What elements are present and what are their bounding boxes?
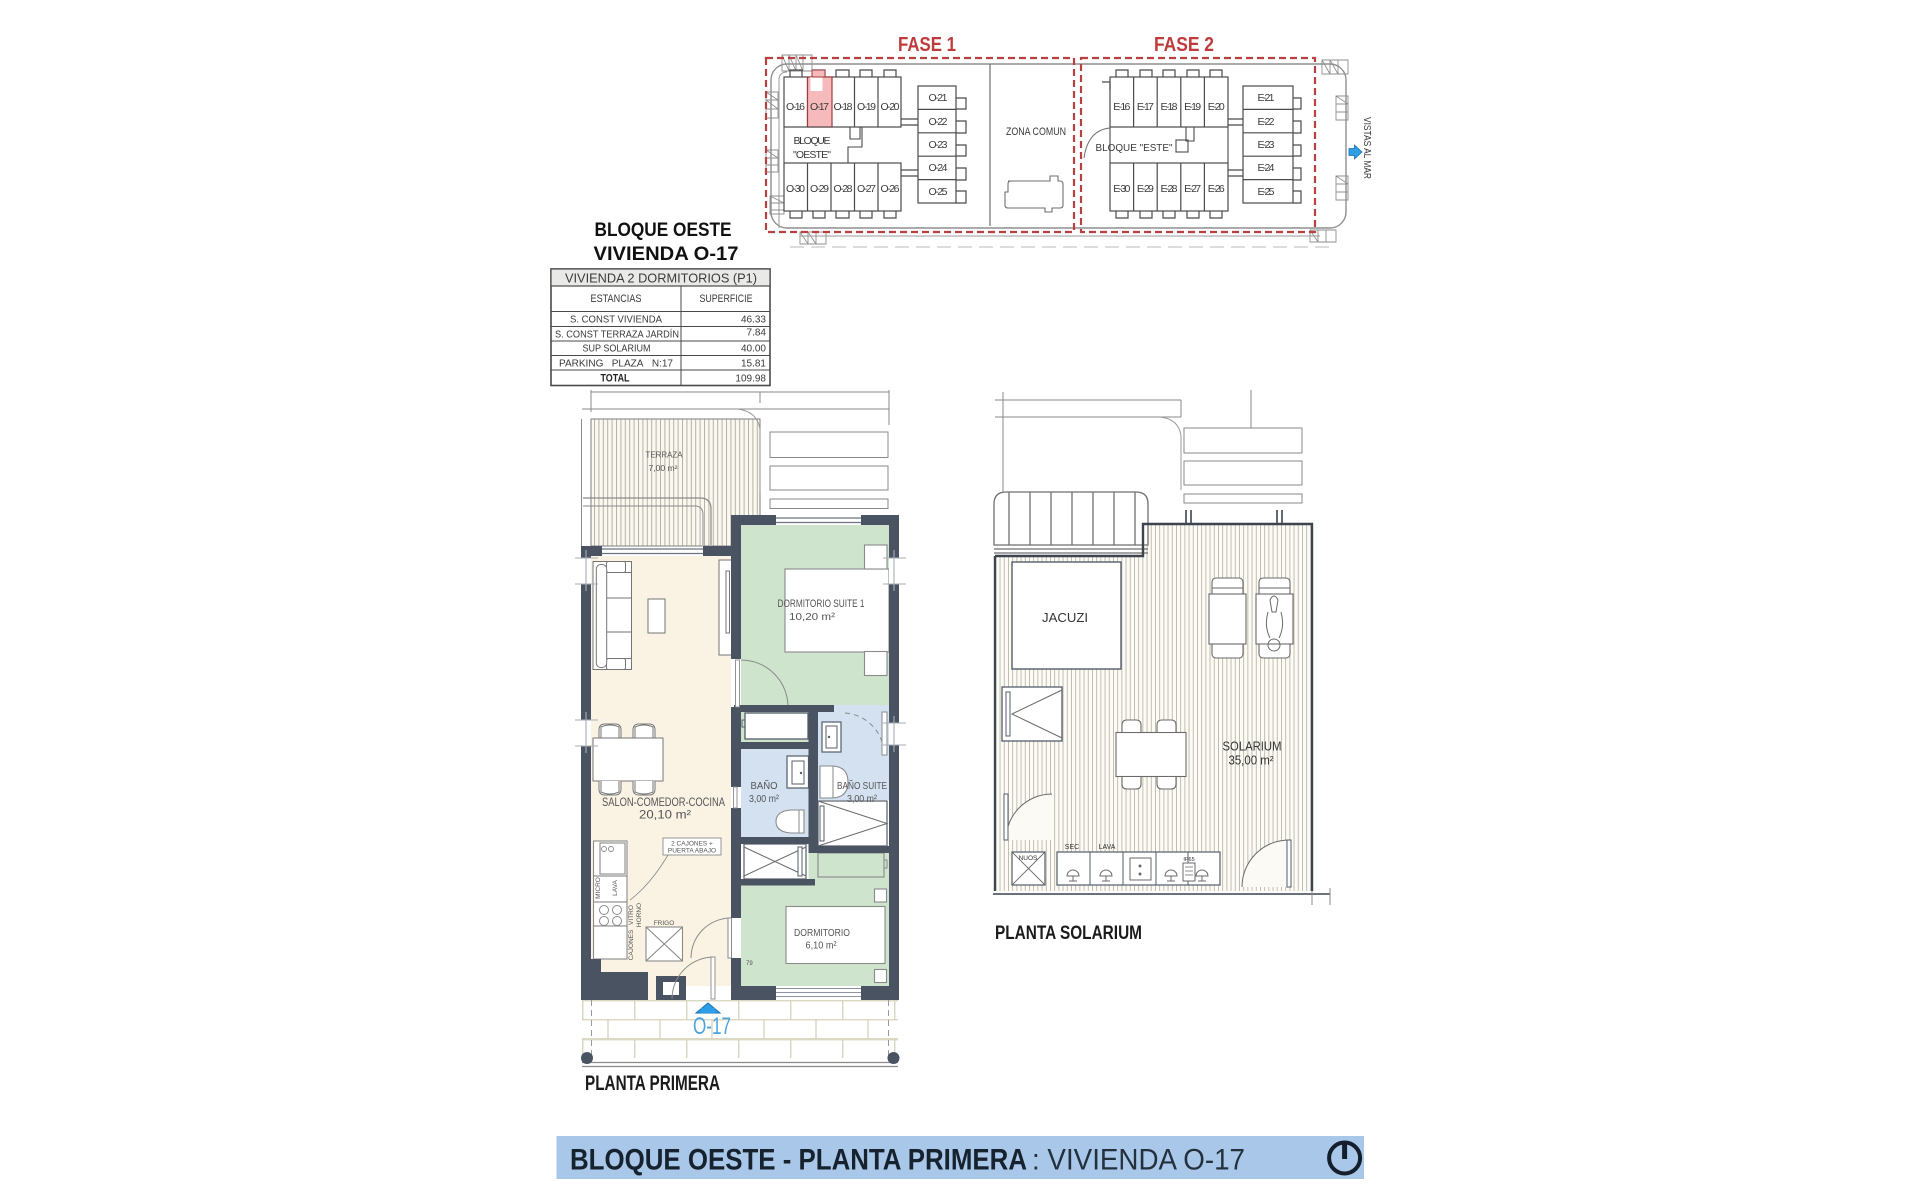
svg-text:HORNO: HORNO	[636, 903, 643, 927]
svg-text:BAÑO: BAÑO	[751, 779, 778, 792]
svg-text:E-17: E-17	[1137, 101, 1154, 113]
svg-text:ESTANCIAS: ESTANCIAS	[591, 293, 642, 305]
svg-text:3,00 m²: 3,00 m²	[847, 794, 878, 805]
svg-text:SEC: SEC	[1065, 844, 1079, 851]
svg-text:"OESTE": "OESTE"	[793, 149, 831, 161]
svg-text:O-19: O-19	[857, 101, 876, 113]
svg-text:6,10 m²: 6,10 m²	[806, 940, 837, 952]
svg-text:E-25: E-25	[1258, 186, 1275, 198]
svg-text:E-29: E-29	[1137, 183, 1154, 195]
svg-text:TOTAL: TOTAL	[601, 373, 630, 385]
svg-text:10,20 m²: 10,20 m²	[789, 611, 836, 623]
svg-text:E-18: E-18	[1161, 101, 1178, 113]
svg-text:E-16: E-16	[1113, 101, 1130, 113]
svg-text:7.84: 7.84	[747, 328, 767, 339]
svg-text:E-24: E-24	[1258, 162, 1275, 174]
svg-text:O-24: O-24	[929, 162, 948, 174]
svg-text:O-16: O-16	[786, 101, 805, 113]
svg-text:15.81: 15.81	[741, 359, 766, 370]
svg-text:DORMITORIO SUITE 1: DORMITORIO SUITE 1	[778, 598, 865, 610]
svg-text:79: 79	[746, 961, 753, 967]
svg-text:O-30: O-30	[786, 183, 805, 195]
svg-text:E-27: E-27	[1184, 183, 1201, 195]
svg-text:O-18: O-18	[834, 101, 853, 113]
svg-text:LAVA: LAVA	[612, 880, 619, 896]
svg-text:E-20: E-20	[1208, 101, 1225, 113]
svg-text:LAVA: LAVA	[1099, 844, 1116, 851]
svg-text:109.98: 109.98	[735, 374, 766, 385]
svg-text:FRIGO: FRIGO	[654, 920, 675, 927]
svg-text:CAJONES: CAJONES	[628, 929, 635, 960]
svg-text:O-27: O-27	[857, 183, 876, 195]
svg-text:IP65: IP65	[1183, 857, 1194, 863]
svg-text:FASE 2: FASE 2	[1154, 34, 1214, 56]
svg-text:O-25: O-25	[929, 186, 948, 198]
svg-text:NUOS: NUOS	[1019, 855, 1038, 862]
svg-text:O-17: O-17	[693, 1013, 731, 1040]
svg-text:: VIVIENDA O-17: : VIVIENDA O-17	[1032, 1144, 1245, 1177]
svg-text:E-22: E-22	[1258, 116, 1275, 128]
svg-text:O-22: O-22	[929, 116, 948, 128]
svg-text:PARKING PLAZA N:17: PARKING PLAZA N:17	[559, 359, 673, 370]
svg-text:S. CONST VIVIENDA: S. CONST VIVIENDA	[570, 315, 662, 326]
svg-text:O-20: O-20	[881, 101, 900, 113]
svg-text:O-21: O-21	[929, 92, 948, 104]
svg-text:JACUZI: JACUZI	[1042, 611, 1088, 625]
svg-text:2 CAJONES +: 2 CAJONES +	[671, 841, 713, 848]
svg-text:DORMITORIO: DORMITORIO	[794, 927, 850, 939]
svg-text:VIVIENDA 2 DORMITORIOS (P1): VIVIENDA 2 DORMITORIOS (P1)	[565, 271, 757, 286]
svg-text:O-26: O-26	[881, 183, 900, 195]
svg-text:BLOQUE OESTE - PLANTA PRIMERA: BLOQUE OESTE - PLANTA PRIMERA	[570, 1144, 1027, 1177]
svg-text:VISTAS AL MAR: VISTAS AL MAR	[1361, 117, 1372, 179]
svg-text:BLOQUE: BLOQUE	[794, 135, 831, 147]
svg-text:VITRO: VITRO	[628, 905, 635, 925]
svg-text:E-19: E-19	[1184, 101, 1201, 113]
svg-text:BAÑO SUITE: BAÑO SUITE	[837, 779, 887, 792]
svg-text:BLOQUE OESTE: BLOQUE OESTE	[595, 220, 732, 241]
svg-text:BLOQUE "ESTE": BLOQUE "ESTE"	[1096, 142, 1173, 154]
svg-text:3,00 m²: 3,00 m²	[749, 794, 780, 805]
svg-text:20,10 m²: 20,10 m²	[639, 808, 691, 822]
svg-text:FASE 1: FASE 1	[898, 34, 956, 56]
svg-text:E-28: E-28	[1161, 183, 1178, 195]
svg-text:E-30: E-30	[1113, 183, 1130, 195]
svg-text:SUP SOLARIUM: SUP SOLARIUM	[583, 344, 651, 355]
svg-text:SOLARIUM: SOLARIUM	[1223, 739, 1282, 754]
svg-text:E-21: E-21	[1258, 92, 1275, 104]
svg-text:SUPERFICIE: SUPERFICIE	[700, 293, 753, 305]
svg-text:PUERTA ABAJO: PUERTA ABAJO	[668, 848, 716, 855]
svg-text:7,00 m²: 7,00 m²	[649, 464, 678, 473]
svg-text:PLANTA PRIMERA: PLANTA PRIMERA	[585, 1072, 720, 1095]
svg-text:ZONA COMUN: ZONA COMUN	[1006, 126, 1066, 138]
svg-text:O-28: O-28	[834, 183, 853, 195]
svg-text:S. CONST TERRAZA JARDÍN: S. CONST TERRAZA JARDÍN	[555, 328, 679, 341]
svg-text:40.00: 40.00	[741, 344, 766, 355]
svg-text:PLANTA SOLARIUM: PLANTA SOLARIUM	[995, 923, 1142, 944]
svg-text:MICRO: MICRO	[595, 877, 602, 899]
svg-text:TERRAZA: TERRAZA	[646, 451, 684, 460]
svg-text:E-26: E-26	[1208, 183, 1225, 195]
svg-text:O-23: O-23	[929, 139, 948, 151]
svg-text:46.33: 46.33	[741, 315, 766, 326]
svg-text:E-23: E-23	[1258, 139, 1275, 151]
svg-text:O-29: O-29	[810, 183, 829, 195]
svg-text:35,00 m²: 35,00 m²	[1229, 753, 1275, 768]
svg-text:O-17: O-17	[810, 101, 829, 113]
svg-text:VIVIENDA O-17: VIVIENDA O-17	[594, 244, 739, 265]
